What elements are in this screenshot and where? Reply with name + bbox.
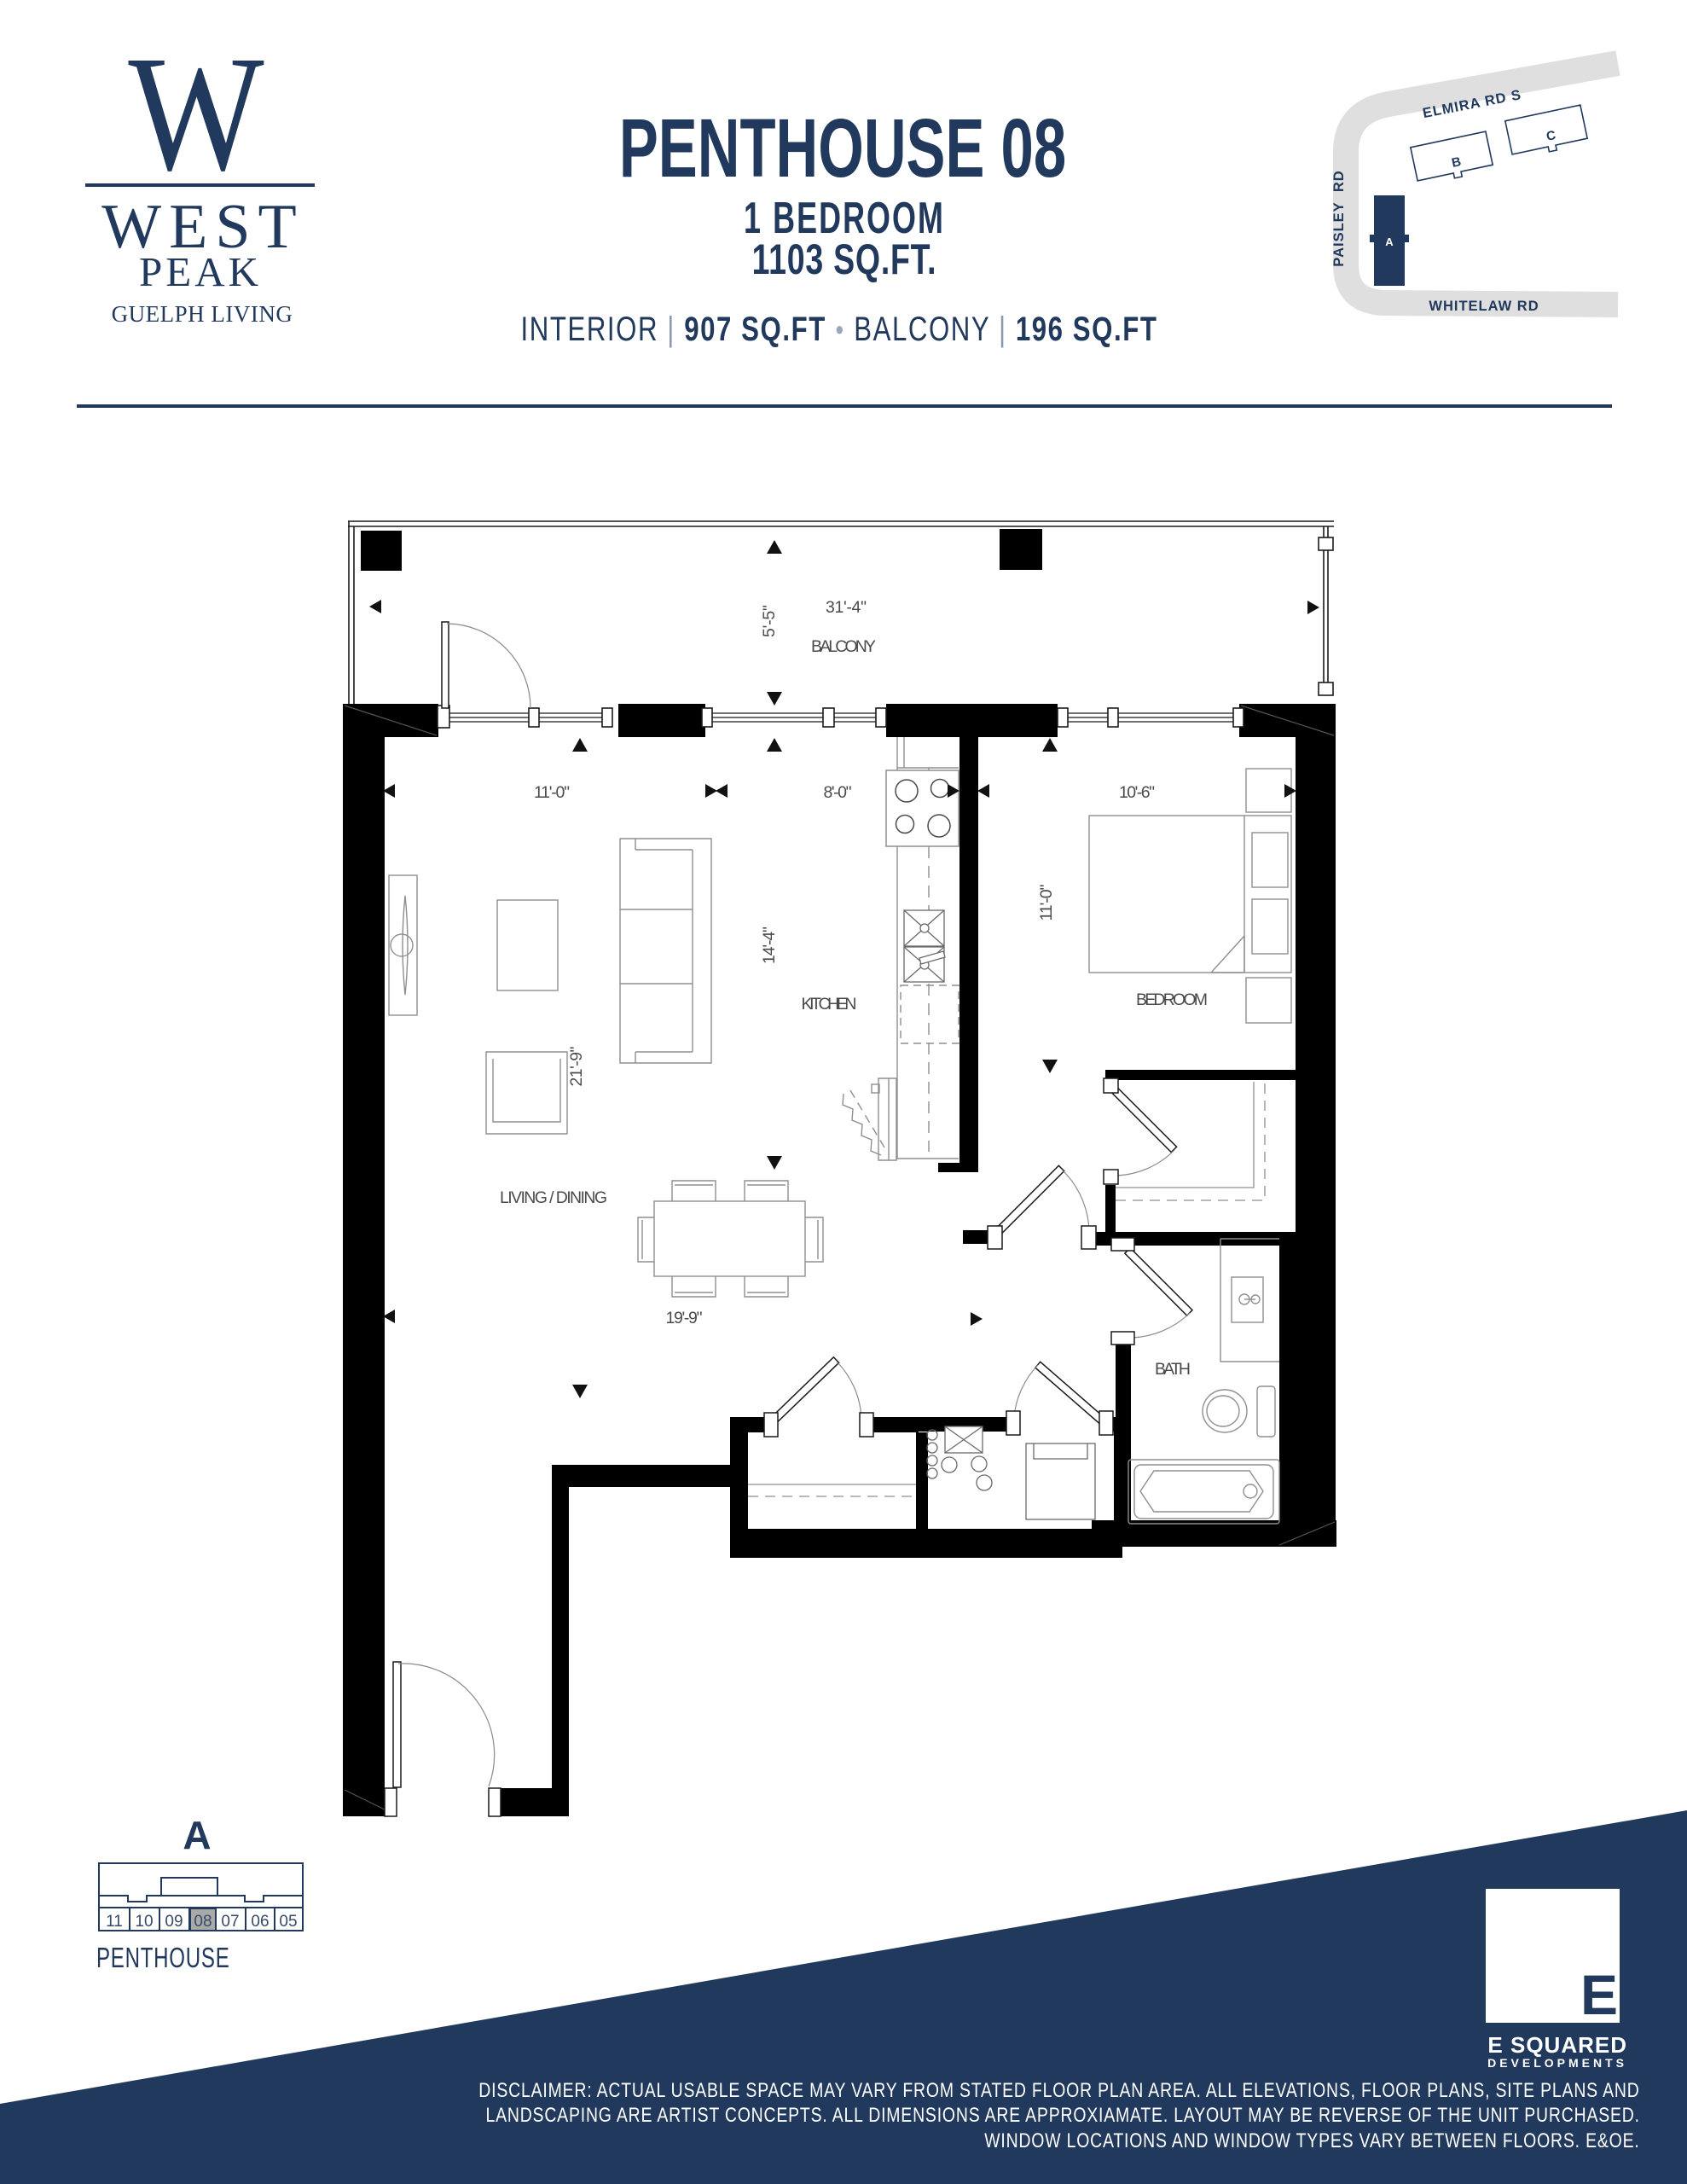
svg-text:21'-9": 21'-9" bbox=[567, 1046, 586, 1086]
svg-text:KITCHEN: KITCHEN bbox=[802, 995, 857, 1014]
svg-text:31'-4": 31'-4" bbox=[826, 598, 867, 617]
svg-text:08: 08 bbox=[194, 1913, 212, 1931]
svg-text:11'-0": 11'-0" bbox=[534, 783, 570, 802]
svg-text:05: 05 bbox=[279, 1913, 297, 1931]
svg-text:19'-9": 19'-9" bbox=[666, 1309, 703, 1327]
svg-text:8'-0": 8'-0" bbox=[824, 783, 852, 802]
svg-text:14'-4": 14'-4" bbox=[760, 926, 779, 964]
svg-text:10'-6": 10'-6" bbox=[1119, 783, 1155, 802]
svg-text:09: 09 bbox=[165, 1913, 183, 1931]
svg-text:10: 10 bbox=[135, 1913, 153, 1931]
svg-text:07: 07 bbox=[221, 1913, 239, 1931]
svg-text:11: 11 bbox=[106, 1913, 123, 1931]
svg-text:PAISLEY RD: PAISLEY RD bbox=[1331, 170, 1347, 266]
svg-text:WHITELAW RD: WHITELAW RD bbox=[1429, 299, 1539, 314]
svg-text:A: A bbox=[1385, 235, 1394, 248]
svg-text:5'-5": 5'-5" bbox=[760, 605, 779, 637]
svg-text:BATH: BATH bbox=[1155, 1360, 1191, 1379]
svg-text:BEDROOM: BEDROOM bbox=[1136, 990, 1208, 1009]
svg-text:LIVING / DINING: LIVING / DINING bbox=[500, 1188, 607, 1207]
svg-text:06: 06 bbox=[251, 1913, 269, 1931]
svg-text:11'-0": 11'-0" bbox=[1037, 884, 1056, 921]
svg-text:BALCONY: BALCONY bbox=[811, 637, 876, 656]
